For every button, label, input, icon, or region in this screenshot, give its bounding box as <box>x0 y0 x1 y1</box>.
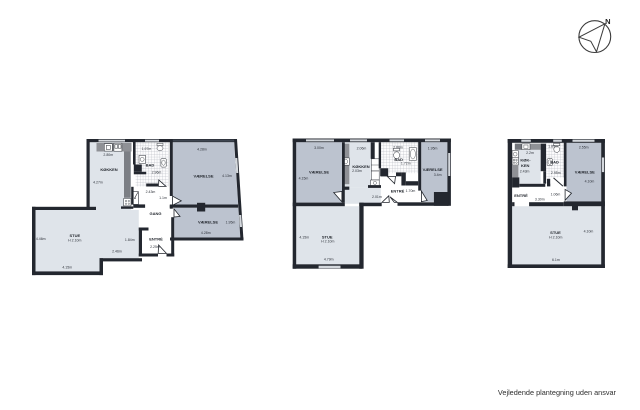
svg-text:KØK-: KØK- <box>520 158 531 163</box>
svg-text:4.46m: 4.46m <box>36 237 46 241</box>
svg-text:1.06m: 1.06m <box>551 193 561 197</box>
svg-text:2.43m: 2.43m <box>146 190 156 194</box>
svg-text:BAD: BAD <box>146 163 155 168</box>
svg-text:1.95m: 1.95m <box>428 147 438 151</box>
svg-text:ENTRÉ: ENTRÉ <box>514 193 528 198</box>
svg-text:6.1m: 6.1m <box>552 258 560 262</box>
svg-text:VÆRELSE: VÆRELSE <box>193 174 213 179</box>
svg-text:3.30m: 3.30m <box>535 197 545 201</box>
svg-text:ENTRÉ: ENTRÉ <box>391 189 405 194</box>
svg-text:H 2.10m: H 2.10m <box>549 235 562 239</box>
svg-text:H 2.10m: H 2.10m <box>321 240 334 244</box>
svg-text:2.95m: 2.95m <box>551 171 561 175</box>
svg-text:2.88m: 2.88m <box>393 146 403 150</box>
svg-text:3.4m: 3.4m <box>434 173 442 177</box>
svg-text:2.55m: 2.55m <box>579 146 589 150</box>
svg-text:4.27m: 4.27m <box>93 180 103 184</box>
svg-text:2.2m: 2.2m <box>526 151 534 155</box>
svg-text:VÆRELSE: VÆRELSE <box>575 170 595 175</box>
svg-text:H 2.10m: H 2.10m <box>68 238 81 242</box>
svg-text:2.06m: 2.06m <box>357 146 367 150</box>
svg-text:KEN: KEN <box>521 163 530 168</box>
svg-text:1.70m: 1.70m <box>406 189 416 193</box>
svg-text:1.72m: 1.72m <box>401 162 411 166</box>
svg-text:2.96m: 2.96m <box>152 170 162 174</box>
svg-text:N: N <box>605 17 610 26</box>
svg-text:STUE: STUE <box>69 233 80 238</box>
svg-text:4.15m: 4.15m <box>299 177 309 181</box>
svg-text:2.46m: 2.46m <box>112 250 122 254</box>
svg-text:1.84m: 1.84m <box>125 238 135 242</box>
svg-text:KØKKEN: KØKKEN <box>100 167 117 172</box>
svg-text:1.89m: 1.89m <box>548 144 558 148</box>
svg-text:2.43m: 2.43m <box>520 170 530 174</box>
svg-text:VÆRELSE: VÆRELSE <box>198 220 218 225</box>
svg-text:4.79m: 4.79m <box>324 257 334 261</box>
svg-text:4.15m: 4.15m <box>62 265 72 269</box>
svg-text:3.00m: 3.00m <box>314 146 324 150</box>
svg-text:4.28m: 4.28m <box>197 148 207 152</box>
svg-text:1.95m: 1.95m <box>226 221 236 225</box>
svg-text:1.97m: 1.97m <box>142 147 152 151</box>
svg-text:2.01m: 2.01m <box>372 195 382 199</box>
svg-text:BAD: BAD <box>550 160 559 165</box>
svg-text:ENTRÉ: ENTRÉ <box>149 237 163 242</box>
svg-text:VÆRELSE: VÆRELSE <box>309 169 329 174</box>
svg-text:STUE: STUE <box>550 230 561 235</box>
svg-text:4.28m: 4.28m <box>201 231 211 235</box>
svg-text:Vejledende plantegning uden an: Vejledende plantegning uden ansvar <box>498 388 617 397</box>
svg-text:2.80m: 2.80m <box>103 153 113 157</box>
svg-text:2.03m: 2.03m <box>352 169 362 173</box>
svg-text:2.25m: 2.25m <box>150 245 160 249</box>
svg-text:4.10m: 4.10m <box>585 179 595 183</box>
svg-text:4.13m: 4.13m <box>222 174 232 178</box>
svg-text:4.10m: 4.10m <box>584 230 594 234</box>
svg-text:1.1m: 1.1m <box>159 196 167 200</box>
svg-text:GANG: GANG <box>150 211 162 216</box>
svg-text:VÆRELSE: VÆRELSE <box>423 167 443 172</box>
svg-text:4.15m: 4.15m <box>299 236 309 240</box>
